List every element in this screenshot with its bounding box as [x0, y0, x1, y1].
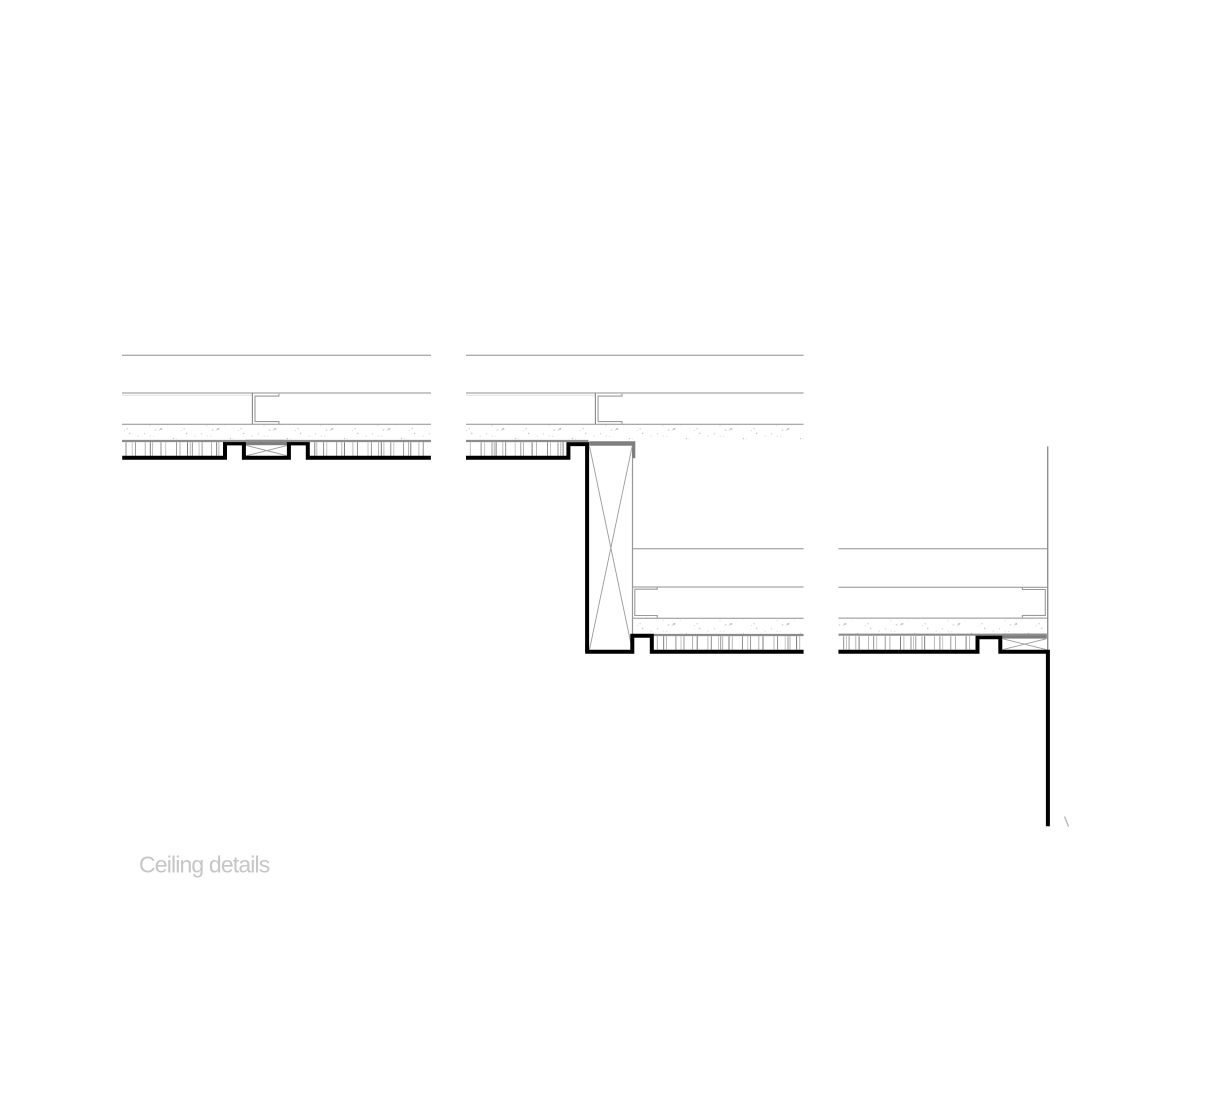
- svg-text:Ceiling details: Ceiling details: [139, 852, 270, 878]
